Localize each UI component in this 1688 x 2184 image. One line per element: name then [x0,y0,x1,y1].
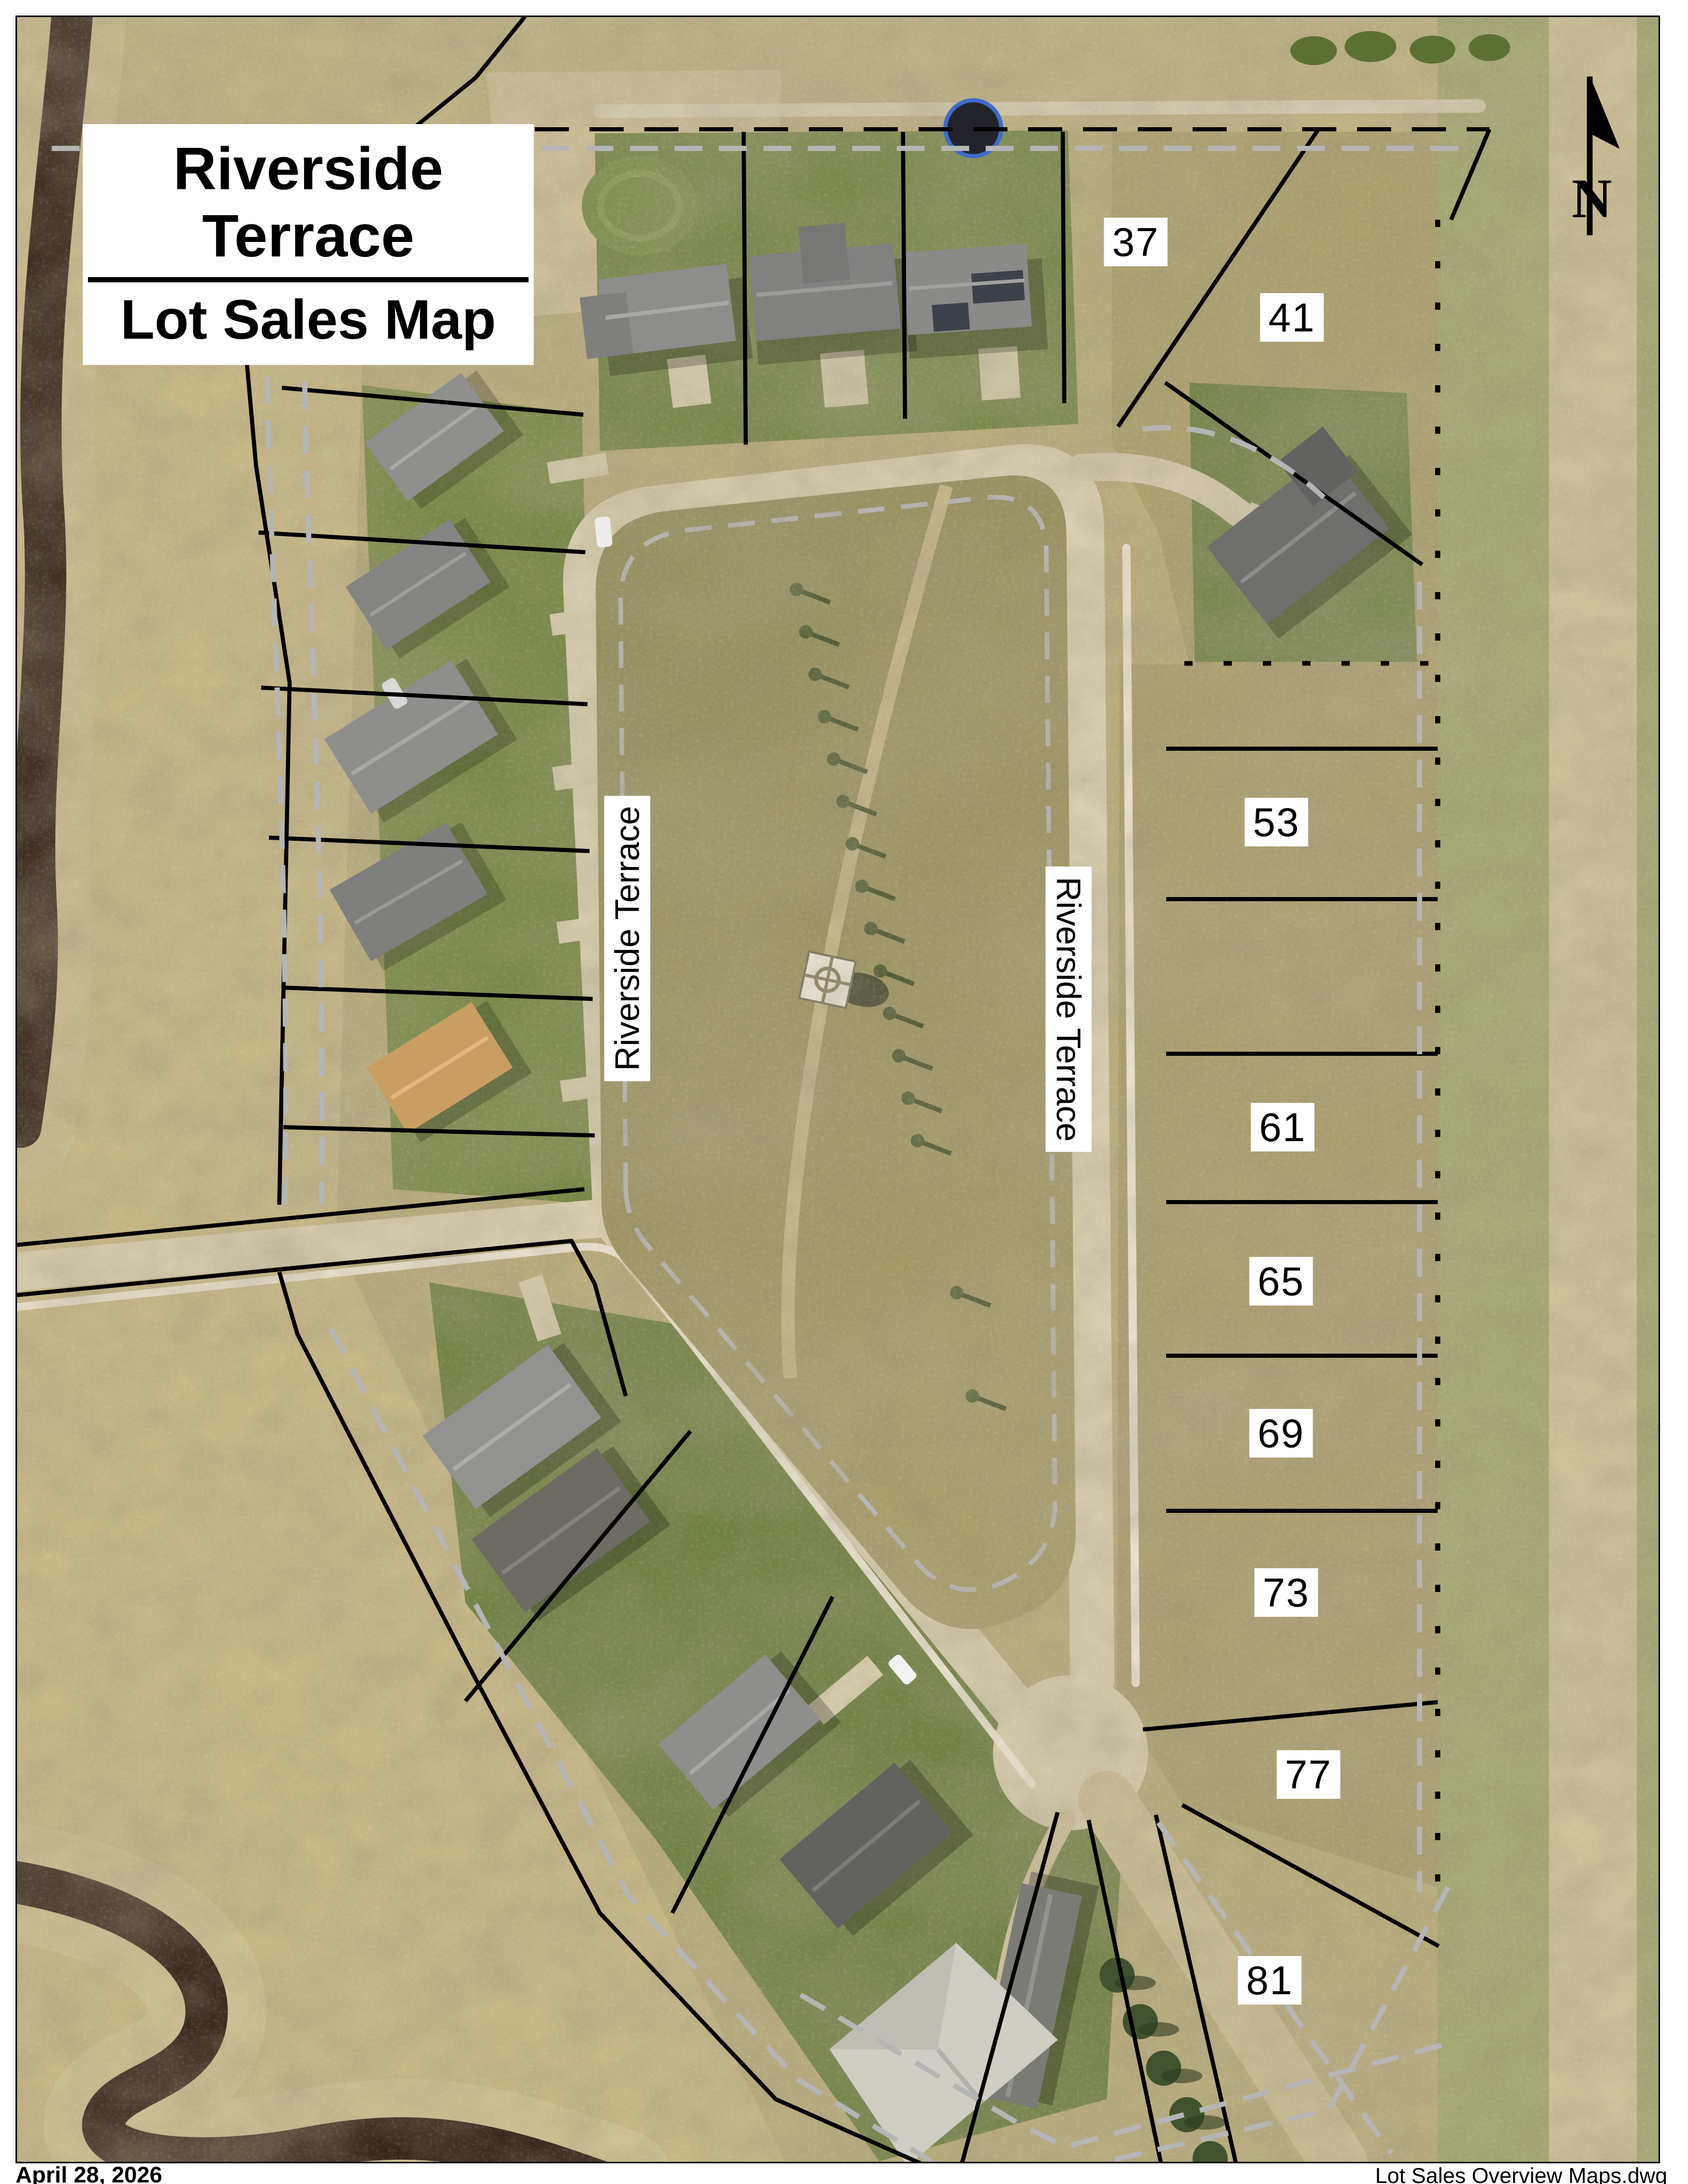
lot-number-77: 77 [1277,1750,1340,1799]
lot-number-81: 81 [1238,1956,1302,2005]
map-title: Riverside Terrace [88,135,529,282]
lot-sales-map-sheet: N Riverside Terrace Lot Sales Map Rivers… [0,0,1688,2184]
lot-number-53: 53 [1245,798,1308,846]
lot-number-41: 41 [1260,293,1324,342]
lot-number-69: 69 [1249,1409,1313,1458]
source-filename: Lot Sales Overview Maps.dwg [1375,2163,1667,2184]
lot-number-61: 61 [1251,1103,1315,1151]
title-block: Riverside Terrace Lot Sales Map [83,124,534,365]
lot-number-73: 73 [1255,1568,1318,1617]
lot-number-37: 37 [1104,218,1168,266]
street-label-west: Riverside Terrace [604,796,650,1081]
street-label-east: Riverside Terrace [1045,867,1091,1152]
plot-date: April 28, 2026 [16,2162,162,2184]
north-label: N [1572,168,1612,230]
lot-number-65: 65 [1249,1257,1313,1306]
map-subtitle: Lot Sales Map [88,287,529,352]
